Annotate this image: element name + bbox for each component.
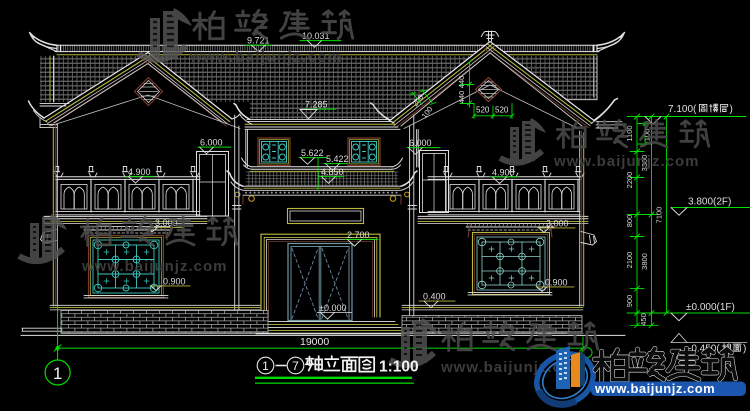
svg-text:7.100(: 7.100(	[668, 104, 697, 115]
svg-text:0.400: 0.400	[423, 292, 446, 302]
svg-text:3.000: 3.000	[546, 218, 569, 228]
svg-text:±0.000(1F): ±0.000(1F)	[686, 302, 735, 313]
svg-text:www.baijunjz.com: www.baijunjz.com	[81, 258, 227, 275]
svg-text:3.800(2F): 3.800(2F)	[688, 197, 731, 208]
svg-text:1: 1	[262, 359, 269, 373]
svg-text:520: 520	[495, 106, 509, 115]
svg-text:www.baijunjz.com: www.baijunjz.com	[594, 381, 715, 396]
svg-text:6.000: 6.000	[200, 138, 223, 148]
svg-text:3800: 3800	[640, 253, 649, 270]
svg-text:4.900: 4.900	[128, 167, 151, 177]
svg-text:): )	[730, 104, 733, 115]
svg-text:7: 7	[292, 359, 299, 373]
svg-text:520: 520	[476, 106, 490, 115]
svg-text:800: 800	[625, 215, 634, 228]
svg-text:440: 440	[457, 76, 466, 89]
svg-text:0.900: 0.900	[545, 277, 568, 287]
svg-text:4.850: 4.850	[321, 167, 344, 177]
svg-text:450: 450	[639, 313, 648, 326]
svg-text:900: 900	[625, 295, 634, 308]
svg-text:4.900: 4.900	[492, 167, 515, 177]
svg-text:5.622: 5.622	[301, 148, 324, 158]
svg-text:www.baijunjz.com: www.baijunjz.com	[553, 153, 699, 170]
svg-text:7.285: 7.285	[305, 100, 328, 110]
svg-text:1: 1	[53, 364, 62, 383]
svg-text:5.422: 5.422	[326, 154, 349, 164]
svg-text:): )	[743, 344, 746, 355]
svg-text:±0.000: ±0.000	[319, 303, 346, 313]
svg-text:7100: 7100	[655, 207, 664, 224]
svg-text:1:100: 1:100	[379, 359, 419, 376]
svg-text:19000: 19000	[300, 336, 329, 348]
svg-text:2200: 2200	[625, 172, 634, 189]
svg-text:2100: 2100	[625, 252, 634, 269]
svg-text:www.baijunjz.com: www.baijunjz.com	[189, 49, 343, 66]
svg-text:0.900: 0.900	[163, 276, 186, 286]
svg-text:440: 440	[457, 91, 466, 104]
svg-text:2.700: 2.700	[347, 230, 370, 240]
svg-text:6.000: 6.000	[409, 138, 432, 148]
